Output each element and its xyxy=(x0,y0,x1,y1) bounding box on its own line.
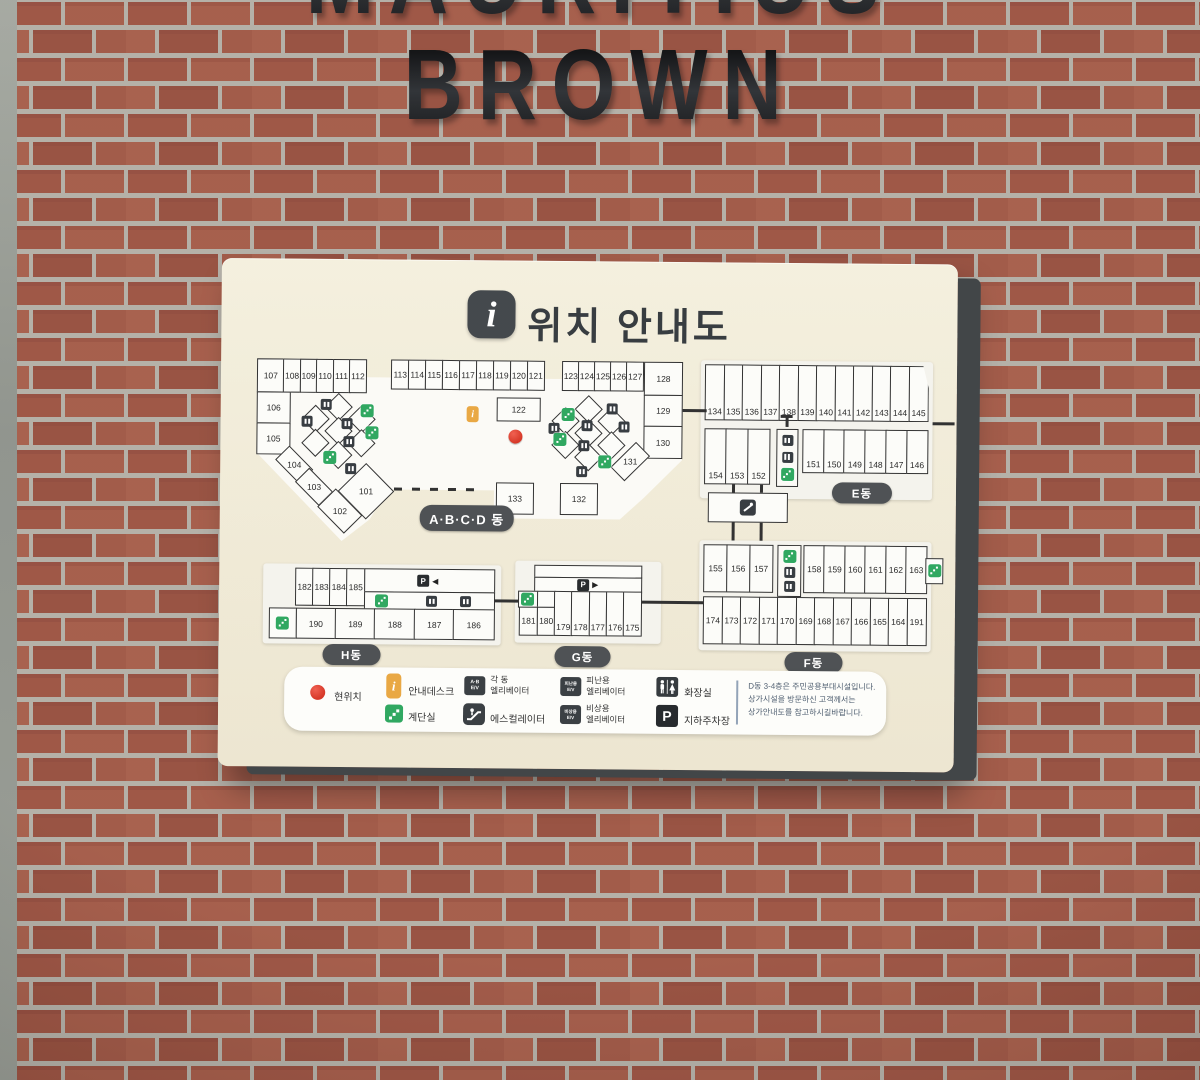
block-label-e: E동 xyxy=(832,482,892,504)
note-line: 상가시설을 방문하신 고객께서는 xyxy=(748,693,882,707)
stairs-icon xyxy=(361,404,374,417)
room-cell: 167 xyxy=(832,597,853,645)
label-line: 엘리베이터 xyxy=(586,714,625,725)
elevator-icon xyxy=(582,420,593,431)
stairs-icon xyxy=(598,455,611,468)
room-cell: 121 xyxy=(526,361,545,391)
label-line: 엘리베이터 xyxy=(490,685,529,696)
elevator-icon xyxy=(782,451,793,462)
room-cell: 155 xyxy=(703,544,728,592)
room-cell: 107 xyxy=(257,358,285,392)
stairs-icon xyxy=(276,616,289,629)
abcd-row-107-112: 107108109110111112 xyxy=(257,358,367,393)
e-row-134-145: 134135136137138139140141142143144145 xyxy=(705,364,929,422)
parking-icon: P xyxy=(577,579,589,591)
g-row-181-180: 181180 xyxy=(519,606,556,635)
room-cell: 148 xyxy=(864,430,887,474)
room-cell: 191 xyxy=(906,598,927,646)
stairs-icon xyxy=(781,468,794,481)
corridor-dash xyxy=(448,488,456,491)
room-cell: 162 xyxy=(885,546,907,594)
room-cell: 163 xyxy=(905,546,927,594)
f-core-shaft xyxy=(777,545,801,597)
room-cell: 152 xyxy=(747,429,771,485)
corridor-line xyxy=(683,409,707,412)
room-cell: 185 xyxy=(346,568,365,606)
parking-icon: P xyxy=(417,575,429,587)
elevator-icon xyxy=(345,463,356,474)
room-cell: 137 xyxy=(760,365,781,421)
room-cell: 127 xyxy=(626,362,644,392)
room-cell: 159 xyxy=(824,545,846,593)
room-cell: 161 xyxy=(864,546,886,594)
elevator-icon xyxy=(321,399,332,410)
room-cell: 165 xyxy=(869,598,890,646)
stairs-icon xyxy=(365,426,378,439)
room-130: 130 xyxy=(643,426,682,459)
stairs-icon xyxy=(553,433,566,446)
stairs-icon xyxy=(375,594,388,607)
room-cell: 154 xyxy=(704,428,728,484)
room-cell: 138 xyxy=(779,365,800,421)
current-location-legend-icon xyxy=(310,685,325,700)
corridor-dash xyxy=(394,488,402,491)
room-cell: 174 xyxy=(703,596,724,644)
corridor-line xyxy=(494,599,518,602)
arrow-right-icon: ▶ xyxy=(592,581,598,589)
room-122: 122 xyxy=(497,397,541,421)
room-cell: 139 xyxy=(797,365,818,421)
room-cell: 170 xyxy=(777,597,798,645)
escalator-icon xyxy=(740,500,756,516)
room-cell: 164 xyxy=(888,598,909,646)
room-cell: 175 xyxy=(623,592,642,637)
legend-label-current-location: 현위치 xyxy=(334,688,362,703)
room-cell: 112 xyxy=(349,359,367,393)
room-cell: 166 xyxy=(851,598,872,646)
label-line: 엘리베이터 xyxy=(586,686,625,697)
info-icon: i xyxy=(467,290,515,338)
parking-legend-icon: P xyxy=(656,705,678,727)
room-cell: 190 xyxy=(295,608,336,639)
room-cell: 135 xyxy=(723,364,744,420)
elevator-icon xyxy=(784,581,795,592)
stairs-icon xyxy=(521,593,534,606)
elevator-icon xyxy=(618,421,629,432)
stairs-legend-icon xyxy=(385,704,403,722)
room-cell: 173 xyxy=(721,596,742,644)
room-cell: 181 xyxy=(519,606,539,635)
info-desk-legend-icon: i xyxy=(386,673,401,698)
corridor-dash xyxy=(466,488,474,491)
evacuation-elevator-legend-icon: 피난용 E/V xyxy=(560,677,581,696)
room-cell: 140 xyxy=(816,365,837,421)
room-cell: 160 xyxy=(844,545,866,593)
elevator-icon xyxy=(576,466,587,477)
stairs-icon xyxy=(323,451,336,464)
room-cell: 153 xyxy=(726,428,750,484)
label-line: 비상용 xyxy=(586,703,625,714)
room-cell: 158 xyxy=(803,545,825,593)
icon-text: E/V xyxy=(471,686,479,692)
stairs-icon xyxy=(562,408,575,421)
corridor-line xyxy=(933,422,955,425)
note-line: D동 3-4층은 주민공용부대시설입니다. xyxy=(748,680,882,694)
legend-label-info-desk: 안내데스크 xyxy=(408,683,454,698)
room-cell: 146 xyxy=(906,430,929,474)
e-row-151-146: 151150149148147146 xyxy=(802,429,928,474)
elevator-icon xyxy=(302,416,313,427)
info-desk-icon: i xyxy=(467,406,479,422)
elevator-icon xyxy=(460,596,471,607)
room-cell: 172 xyxy=(740,597,761,645)
abcd-row-123-127: 123124125126127 xyxy=(562,361,644,392)
e-core-shaft xyxy=(776,429,799,487)
room-cell: 156 xyxy=(726,544,751,592)
legend-label-building-elevator: 각 동 엘리베이터 xyxy=(490,674,529,696)
room-cell: 134 xyxy=(705,364,726,420)
location-guide-sign-board: i 위치 안내도 107108109110111112 113114115116… xyxy=(218,258,958,772)
g-row-179-175: 179178177176175 xyxy=(554,591,642,636)
room-cell: 120 xyxy=(509,361,528,391)
escalator-legend-icon xyxy=(463,703,485,725)
room-cell: 157 xyxy=(749,545,774,593)
room-cell: 142 xyxy=(853,366,874,422)
room-cell: 168 xyxy=(814,597,835,645)
room-cell: 149 xyxy=(844,429,867,473)
h-row-182-185: 182183184185 xyxy=(295,568,365,607)
stairs-icon xyxy=(928,564,941,577)
block-label-g: G동 xyxy=(554,646,610,667)
building-elevator-legend-icon: A·B E/V xyxy=(464,676,485,695)
f-row-174-191: 174173172171170169168167166165164191 xyxy=(703,596,927,646)
legend-label-parking: 지하주차장 xyxy=(684,712,730,727)
legend-divider xyxy=(736,681,738,725)
abcd-row-113-121: 113114115116117118119120121 xyxy=(391,359,545,390)
legend-label-evac-elevator: 피난용 엘리베이터 xyxy=(586,675,625,697)
h-row-190-186: 190189188187186 xyxy=(295,608,494,641)
block-label-abcd: A·B·C·D 동 xyxy=(420,505,514,532)
room-128: 128 xyxy=(644,362,683,396)
room-cell: 144 xyxy=(890,366,911,422)
room-cell: 186 xyxy=(453,609,494,640)
room-132: 132 xyxy=(560,483,598,515)
legend-label-emer-elevator: 비상용 엘리베이터 xyxy=(586,703,625,725)
note-line: 상가안내도를 참고하시길바랍니다. xyxy=(748,706,882,720)
room-cell: 171 xyxy=(758,597,779,645)
room-106: 106 xyxy=(257,391,291,424)
room-cell: 147 xyxy=(885,430,908,474)
arrow-left-icon: ◀ xyxy=(432,577,438,585)
corridor-dash xyxy=(412,488,420,491)
room-cell: 136 xyxy=(742,365,763,421)
elevator-icon xyxy=(426,596,437,607)
legend-panel: 현위치 i 안내데스크 계단실 A·B E/V 각 동 엘리베이터 에스컬레이터 xyxy=(284,667,887,736)
block-label-h: H동 xyxy=(322,644,380,666)
corridor-dash xyxy=(430,488,438,491)
legend-label-restroom: 화장실 xyxy=(684,684,712,699)
room-cell: 187 xyxy=(414,609,455,640)
wall-mark xyxy=(781,415,793,418)
elevator-icon xyxy=(343,436,354,447)
room-129: 129 xyxy=(644,394,683,427)
f-row-158-163: 158159160161162163 xyxy=(803,545,927,594)
icon-text: E/V xyxy=(567,687,574,692)
room-cell: 169 xyxy=(795,597,816,645)
e-row-154-152: 154153152 xyxy=(704,428,770,485)
f-row-155-157: 155156157 xyxy=(703,544,773,593)
stairs-icon xyxy=(783,550,796,563)
emergency-elevator-legend-icon: 비상용 E/V xyxy=(560,705,581,724)
room-cell: 189 xyxy=(335,608,376,639)
legend-label-stairs: 계단실 xyxy=(408,709,436,724)
elevator-icon xyxy=(578,440,589,451)
current-location-marker xyxy=(508,430,522,444)
room-cell: 145 xyxy=(908,366,929,422)
elevator-icon xyxy=(782,435,793,446)
room-cell: 141 xyxy=(834,365,855,421)
room-cell: 188 xyxy=(374,608,415,639)
room-cell: 150 xyxy=(823,429,846,473)
elevator-icon xyxy=(784,566,795,577)
label-line: 각 동 xyxy=(490,674,529,685)
legend-note: D동 3-4층은 주민공용부대시설입니다. 상가시설을 방문하신 고객께서는 상… xyxy=(748,680,882,721)
legend-label-escalator: 에스컬레이터 xyxy=(490,710,545,725)
elevator-icon xyxy=(607,403,618,414)
label-line: 피난용 xyxy=(586,675,625,686)
photo-of-wayfinding-sign: MAURITIUS MAURITIUS BROWN BROWN i 위치 안내도… xyxy=(0,0,1200,1080)
corridor-line xyxy=(642,601,703,604)
wall-edge-strip xyxy=(0,0,17,1080)
building-name-bottom: BROWN xyxy=(108,28,1092,143)
sign-title: 위치 안내도 xyxy=(527,295,731,352)
room-cell: 151 xyxy=(802,429,825,473)
restroom-legend-icon xyxy=(656,677,678,697)
elevator-icon xyxy=(342,418,353,429)
icon-text: E/V xyxy=(567,715,574,720)
room-cell: 143 xyxy=(871,366,892,422)
